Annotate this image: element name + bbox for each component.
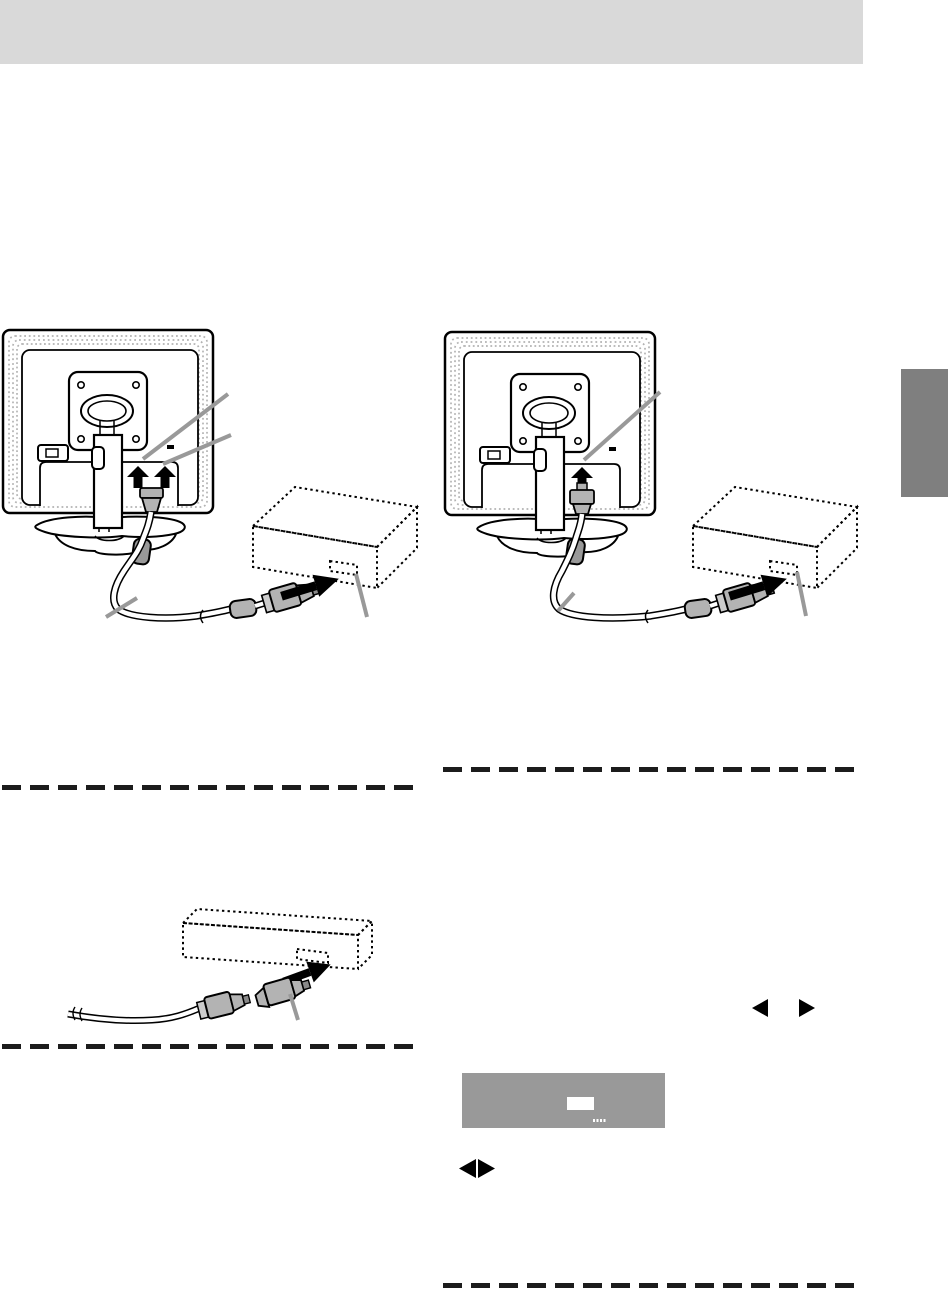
adapter-connection-diagram xyxy=(60,890,360,1040)
stand-column xyxy=(92,435,122,528)
computer-outline xyxy=(253,487,417,588)
left-right-buttons-pair-icon xyxy=(459,1159,495,1178)
computer-outline xyxy=(693,487,857,588)
left-right-button-icons xyxy=(752,999,816,1017)
ferrite-core xyxy=(229,598,257,618)
computer-port-outline xyxy=(297,949,328,963)
label-mark xyxy=(167,445,174,449)
digital-connection-diagram xyxy=(440,325,880,635)
manual-page: { "page": { "kind": "monitor-setup-manua… xyxy=(0,0,948,1293)
height-latch xyxy=(534,449,546,471)
label-mark xyxy=(609,447,616,451)
osd-screen xyxy=(462,1073,665,1128)
osd-highlight-box xyxy=(567,1097,594,1110)
cable-plug xyxy=(196,987,252,1021)
left-arrow-icon xyxy=(752,999,768,1017)
page-edge-tab xyxy=(901,369,948,497)
dashed-separator xyxy=(443,767,863,772)
dashed-separator xyxy=(2,785,418,790)
computer-port-outline xyxy=(770,561,797,575)
header-bar xyxy=(0,0,863,64)
signal-cable xyxy=(554,514,722,623)
height-latch xyxy=(92,447,104,469)
stand-column xyxy=(534,437,564,530)
callout-line-computer-port xyxy=(356,574,367,617)
callout-line-computer-port xyxy=(797,572,806,616)
computer-port-outline xyxy=(330,561,357,575)
right-arrow-icon xyxy=(478,1159,495,1178)
dashed-separator xyxy=(2,1044,418,1049)
ferrite-core xyxy=(684,598,712,618)
signal-cable xyxy=(68,1007,200,1021)
left-arrow-icon xyxy=(459,1159,476,1178)
analog-connection-diagram xyxy=(0,325,440,635)
right-arrow-icon xyxy=(799,999,815,1017)
osd-dots-icon xyxy=(593,1119,607,1122)
dashed-separator xyxy=(443,1283,863,1288)
callout-line-cable xyxy=(558,593,574,611)
computer-outline xyxy=(183,909,372,969)
